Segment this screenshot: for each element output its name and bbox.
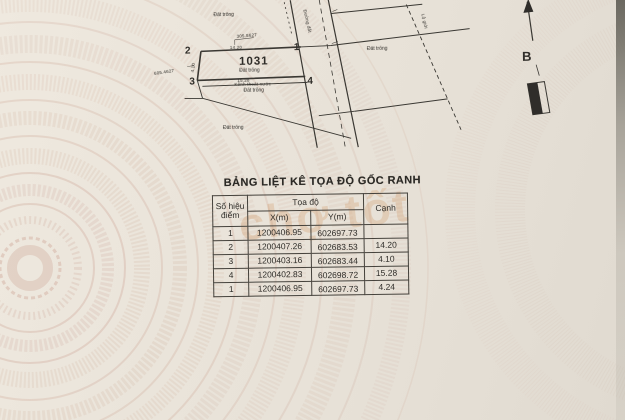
cell-edge: 4.24 <box>365 280 409 295</box>
planned-boundary-dashed <box>406 4 461 131</box>
cell-x: 1200406.95 <box>249 281 312 296</box>
annotation-top-leader: 305.8627 <box>236 32 257 39</box>
cell-edge: 14.20 <box>364 238 408 253</box>
cell-point: 2 <box>213 240 248 254</box>
col-header-edge: Cạnh <box>363 193 407 225</box>
north-arrow-head-icon <box>523 0 533 13</box>
cell-point: 3 <box>213 254 248 268</box>
cell-y: 602683.53 <box>311 239 364 254</box>
table-row: 1 1200406.95 602697.73 4.24 <box>214 280 409 297</box>
north-label: B <box>522 49 532 64</box>
cell-edge: 15.28 <box>364 266 408 281</box>
empty-land-label: Đất trống <box>239 68 260 74</box>
annotation-left-leader: 605.4627 <box>154 68 175 76</box>
col-header-y: Y(m) <box>311 210 364 226</box>
col-header-point-line2: điểm <box>221 210 240 220</box>
photo-edge-strip <box>616 0 625 420</box>
cell-y: 602698.72 <box>311 267 364 282</box>
document-content: B 2 1 3 4 1031 Đất trống Đất trống Đất t… <box>0 0 625 420</box>
cadastral-sketch: B 2 1 3 4 1031 Đất trống Đất trống Đất t… <box>0 0 625 179</box>
cell-x: 1200403.16 <box>248 253 311 268</box>
empty-land-label: Đất trống <box>213 12 234 18</box>
cell-y-value: 602683.44 <box>318 257 358 267</box>
point-label-2: 2 <box>185 46 191 57</box>
cell-x: 1200407.26 <box>248 239 311 254</box>
cell-y: 602697.73 <box>312 281 365 296</box>
right-boundaries <box>330 4 470 112</box>
certificate-photo: B 2 1 3 4 1031 Đất trống Đất trống Đất t… <box>0 0 625 420</box>
empty-land-label: Đất trống <box>223 125 244 131</box>
minor-boundaries <box>184 45 355 140</box>
cell-x: 1200402.83 <box>248 267 311 282</box>
north-arrow-connector <box>536 65 539 76</box>
cell-point: 1 <box>213 226 248 240</box>
cell-y: 602683.44 <box>311 253 364 268</box>
col-header-point: Số hiệu điểm <box>212 195 247 226</box>
dashed-left-of-road <box>284 2 291 34</box>
cell-edge: 4.10 <box>364 252 408 267</box>
road-edge-lines <box>290 0 358 148</box>
cell-point: 1 <box>214 282 249 296</box>
point-label-1: 1 <box>294 42 300 53</box>
cell-y-value: 602698.72 <box>318 271 358 281</box>
cell-y-value: 602683.53 <box>318 243 358 253</box>
boundary-note-label: Lộ giới <box>420 13 428 29</box>
cell-y: 602697.73 <box>311 225 364 240</box>
cell-y-value: 602697.73 <box>318 285 358 295</box>
edge-length-top: 14.20 <box>230 45 243 50</box>
col-header-coords: Tọa độ <box>247 194 363 212</box>
empty-land-label: Đất trống <box>367 46 388 52</box>
coordinates-table: Số hiệu điểm Tọa độ Cạnh X(m) Y(m) 1 120… <box>212 192 409 297</box>
point-label-4: 4 <box>307 76 313 87</box>
cell-edge <box>364 224 408 239</box>
cell-x: 1200406.95 <box>248 225 311 240</box>
cell-y-value: 602697.73 <box>317 229 357 239</box>
edge-length-bottom: 15.28 <box>237 78 250 83</box>
edge-length-left: 4.10 <box>190 62 196 72</box>
cell-point: 4 <box>213 268 248 282</box>
col-header-x: X(m) <box>248 210 311 226</box>
empty-land-label: Đất trống <box>243 87 264 93</box>
point-label-3: 3 <box>189 76 195 87</box>
parcel-number: 1031 <box>239 55 269 67</box>
road-name-label: Đường đất <box>302 9 312 34</box>
